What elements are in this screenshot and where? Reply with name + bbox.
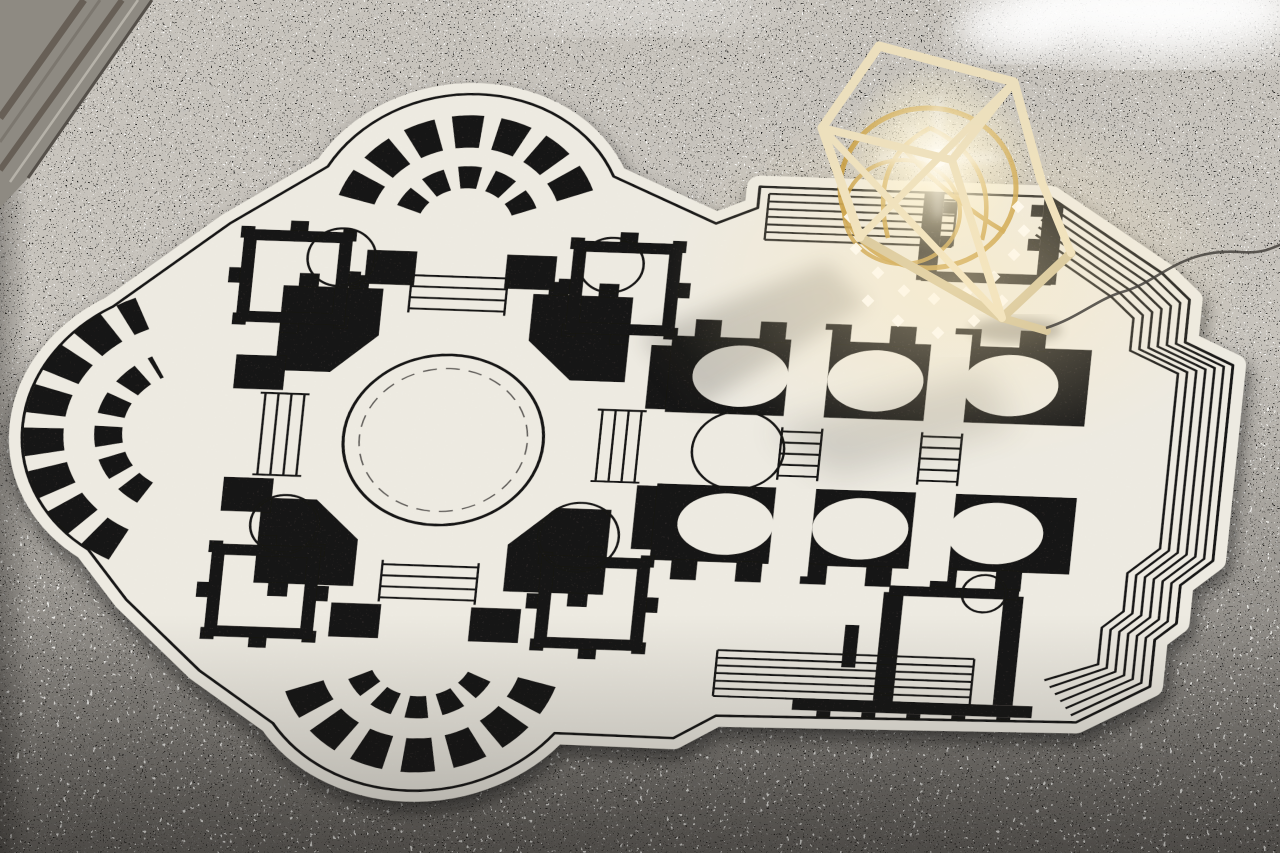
bottom-vignette <box>0 0 1280 853</box>
scene-canvas <box>0 0 1280 853</box>
photo-scene <box>0 0 1280 853</box>
